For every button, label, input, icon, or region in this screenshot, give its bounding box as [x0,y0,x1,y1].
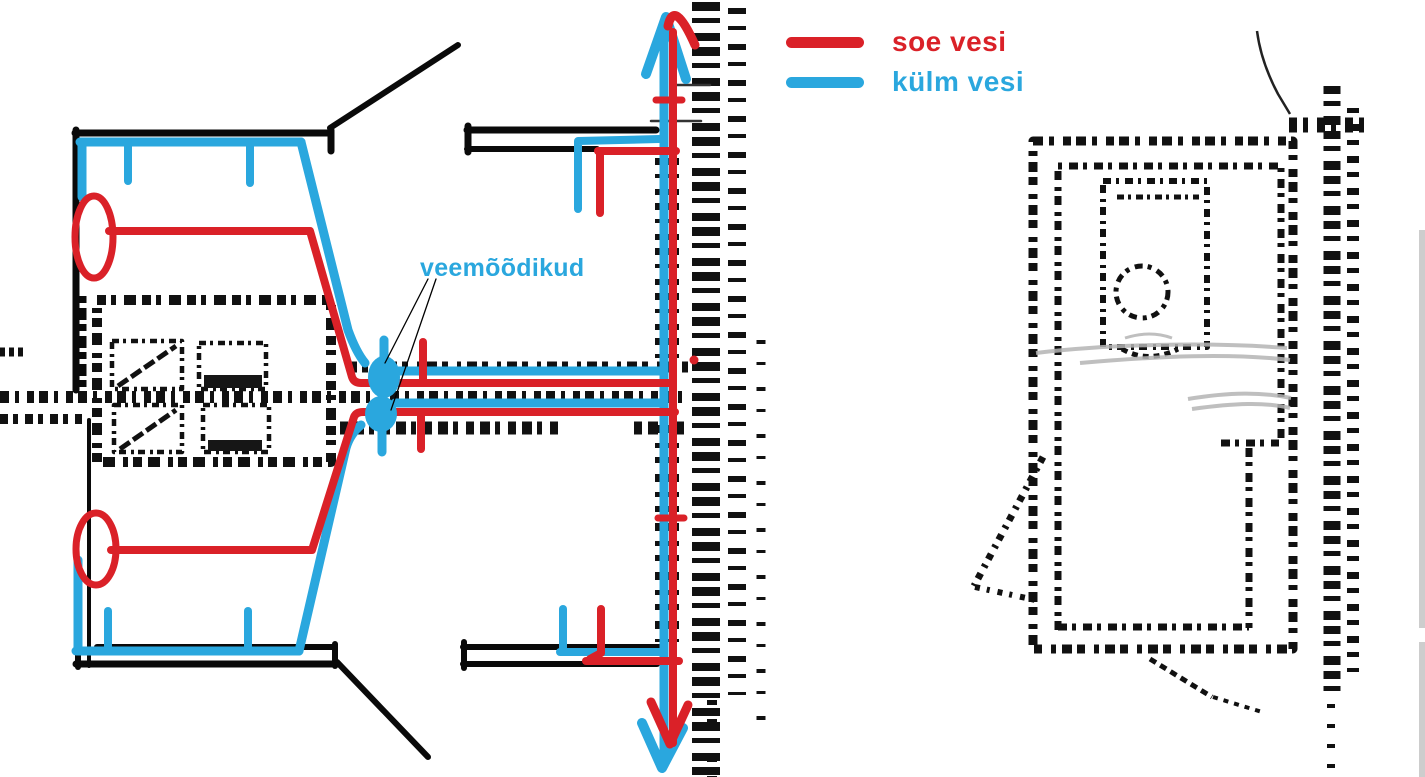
hot-water-swatch-icon [786,37,864,48]
scrollbar-strip [1419,230,1425,777]
legend-item-hot-water: soe vesi [786,27,1024,58]
pencil-smudges [1036,334,1291,409]
right-plan [974,31,1365,777]
door-swing-line-bottom [337,662,428,757]
water-meter-top [368,356,400,398]
radiator-symbol-top [75,196,113,278]
door-swing-line-top [330,45,458,128]
fixture-outline [1103,181,1207,347]
cold-water-label: külm vesi [892,67,1024,98]
legend: soe vesi külm vesi [786,27,1024,98]
water-meters-label: veemõõdikud [420,254,584,283]
floor-plan-canvas: soe vesi külm vesi veemõõdikud [0,0,1425,777]
fixture-circle [1116,266,1168,318]
hot-water-label: soe vesi [892,27,1007,58]
legend-item-cold-water: külm vesi [786,67,1024,98]
plan-drawing [0,0,1425,777]
cold-water-swatch-icon [786,77,864,88]
